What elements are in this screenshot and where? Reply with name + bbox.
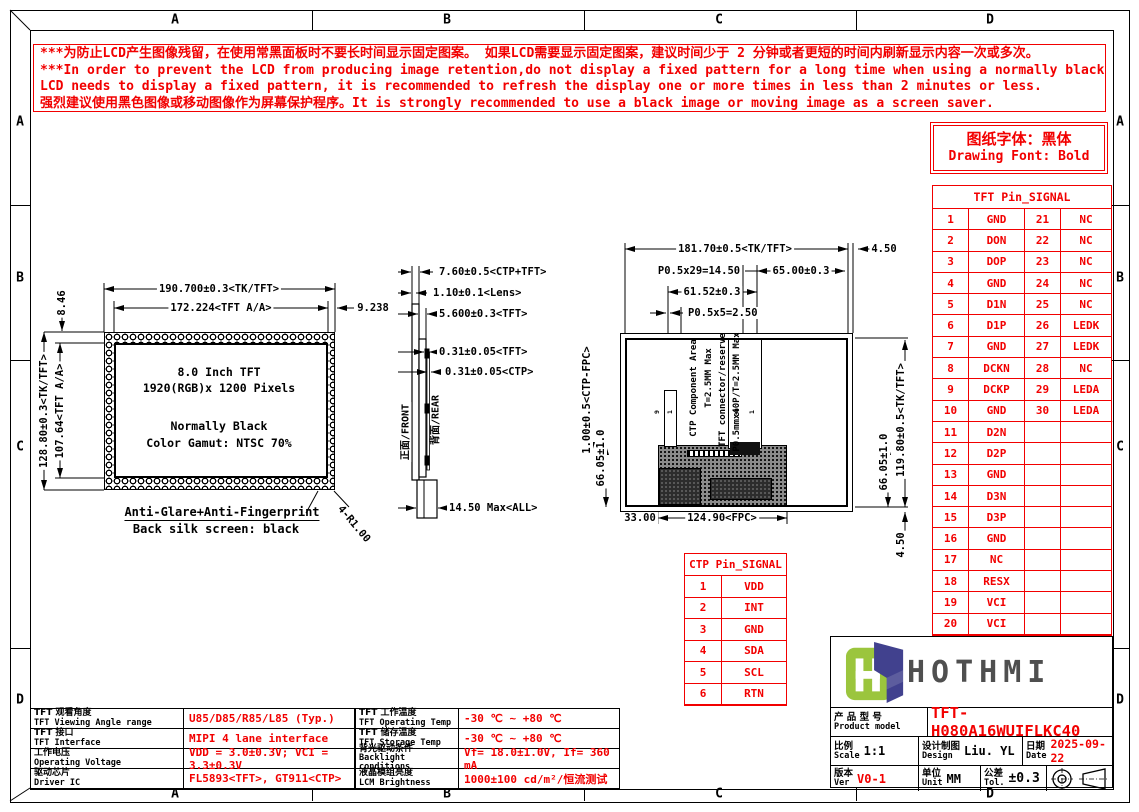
pin-number: 2 xyxy=(685,598,722,620)
dim-top-border: 8.46 xyxy=(56,288,68,317)
pin-number: 12 xyxy=(933,443,969,464)
rear-ctp-fpc-tail xyxy=(664,390,677,447)
spec-value: -30 ℃ ~ +80 ℃ xyxy=(459,709,619,728)
dim-max-thickness: 14.50 Max<ALL> xyxy=(447,502,540,514)
date-label-cn: 日期 xyxy=(1026,742,1046,752)
rear-fpc-stiffener xyxy=(659,468,701,505)
zone-label-top-c: C xyxy=(715,13,723,28)
rear-fpc-component xyxy=(710,478,772,500)
drawing-font-note: 图纸字体：黑体 Drawing Font: Bold xyxy=(930,122,1108,174)
pin-signal: D1N xyxy=(969,294,1025,315)
dim-outline-width: 190.700±0.3<TK/TFT> xyxy=(157,283,281,295)
pin-signal: VDD xyxy=(722,576,786,598)
scale-design-date-row: 比例 Scale 1:1 设计制图 Design Liu. YL 日期 Date… xyxy=(831,736,1112,765)
tft-pin-row: 3 DOP 23 NC xyxy=(933,252,1111,273)
unit-value: MM xyxy=(946,772,960,786)
design-label-cn: 设计制图 xyxy=(922,742,960,752)
pin-signal: GND xyxy=(969,209,1025,230)
zone-tick xyxy=(10,360,30,361)
pin-number xyxy=(1025,571,1061,592)
rear-thickness-label: T=2.5MM Max xyxy=(704,346,714,410)
pin-signal xyxy=(1061,486,1111,507)
front-view-active-area xyxy=(114,343,328,478)
zone-tick xyxy=(10,648,30,649)
pin-signal xyxy=(1061,528,1111,549)
spec-value: Vf= 18.0±1.0V, If= 360 mA xyxy=(459,749,619,768)
ver-unit-tol-row: 版本 Ver V0-1 单位 Unit MM 公差 Tol. ±0.3 xyxy=(831,765,1112,791)
zone-tick xyxy=(1112,648,1129,649)
pin-signal: D3P xyxy=(969,507,1025,528)
spec-label-en: TFT Operating Temp xyxy=(359,719,455,728)
dim-rear-height: 119.80±0.5<TK/TFT> xyxy=(895,361,907,479)
pin-signal: NC xyxy=(969,550,1025,571)
spec-row: 液晶模组亮度 LCM Brightness 1000±100 cd/m²/恒流测… xyxy=(356,769,619,788)
pin-number: 30 xyxy=(1025,401,1061,422)
rear-pitch-label: P0.5mmx40P/T=2.5MM Max xyxy=(732,330,742,453)
dim-outline-height: 128.80±0.3<TK/TFT> xyxy=(38,352,50,470)
tolerance-cell: 公差 Tol. ±0.3 xyxy=(981,766,1047,791)
dim-33: 33.00 xyxy=(622,512,658,524)
pin-number: 5 xyxy=(685,662,722,684)
dim-total-thickness: 7.60±0.5<CTP+TFT> xyxy=(437,266,548,278)
pin-number: 1 xyxy=(685,576,722,598)
spec-label-en: TFT Interface xyxy=(34,739,180,748)
tft-pin-row: 20 VCI xyxy=(933,614,1111,635)
pin-number: 3 xyxy=(685,619,722,641)
pin-number: 10 xyxy=(933,401,969,422)
product-label-cn: 产 品 型 号 xyxy=(834,713,901,723)
pin-number: 22 xyxy=(1025,230,1061,251)
spec-row: 工作电压 Operating Voltage VDD = 3.0±0.3V; V… xyxy=(31,749,354,769)
spec-row: TFT 观看角度 TFT Viewing Angle range U85/D85… xyxy=(31,709,354,729)
pin-number: 8 xyxy=(933,358,969,379)
pin-signal: RESX xyxy=(969,571,1025,592)
pin-number: 14 xyxy=(933,486,969,507)
date-label-en: Date xyxy=(1026,752,1046,761)
spec-label: TFT 接口 TFT Interface xyxy=(31,729,184,748)
scale-cell: 比例 Scale 1:1 xyxy=(831,737,919,765)
spec-table-left: TFT 观看角度 TFT Viewing Angle range U85/D85… xyxy=(30,708,355,789)
dim-right-border: 9.238 xyxy=(355,302,391,314)
font-note-en: Drawing Font: Bold xyxy=(934,149,1104,164)
pin-number xyxy=(1025,486,1061,507)
spec-label: 背光驱动条件 Backlight conditions xyxy=(356,749,459,768)
pin-signal: D2P xyxy=(969,443,1025,464)
tft-pin-row: 7 GND 27 LEDK xyxy=(933,337,1111,358)
front-resolution-label: 1920(RGB)x 1200 Pixels xyxy=(143,381,295,395)
pin-number xyxy=(1025,443,1061,464)
pin-signal: RTN xyxy=(722,684,786,706)
pin-number: 26 xyxy=(1025,315,1061,336)
zone-tick xyxy=(856,10,857,30)
ctp-pin-number-1: 1 xyxy=(666,410,674,414)
pin-signal: NC xyxy=(1061,252,1111,273)
zone-label-top-b: B xyxy=(443,13,451,28)
spec-label: 液晶模组亮度 LCM Brightness xyxy=(356,769,459,788)
dim-6605-right: 66.05±1.0 xyxy=(878,432,890,493)
font-note-cn: 图纸字体：黑体 xyxy=(934,128,1104,149)
pin-signal: D2N xyxy=(969,422,1025,443)
ctp-pin-table-title: CTP Pin_SIGNAL xyxy=(685,554,786,576)
zone-tick xyxy=(584,10,585,30)
rear-ctp-area-label: CTP Component Area xyxy=(689,337,699,439)
dim-6152: 61.52±0.3 xyxy=(682,286,743,298)
pin-number: 16 xyxy=(933,528,969,549)
pin-number xyxy=(1025,507,1061,528)
date-cell: 日期 Date 2025-09-22 xyxy=(1023,737,1112,765)
pin-number: 17 xyxy=(933,550,969,571)
tft-pin-row: 17 NC xyxy=(933,550,1111,571)
dim-tft-gap: 0.31±0.05<TFT> xyxy=(437,346,530,358)
tft-pin-row: 13 GND xyxy=(933,465,1111,486)
zone-label-top-a: A xyxy=(171,13,179,28)
tft-pin-row: 6 D1P 26 LEDK xyxy=(933,315,1111,336)
pin-signal: VCI xyxy=(969,592,1025,613)
zone-label-bottom-c: C xyxy=(715,787,723,802)
pin-number: 15 xyxy=(933,507,969,528)
spec-value: U85/D85/R85/L85 (Typ.) xyxy=(184,709,354,728)
pin-signal: D1P xyxy=(969,315,1025,336)
dim-lens-thickness: 1.10±0.1<Lens> xyxy=(431,287,524,299)
logo-row: HOTHMI xyxy=(831,637,1112,707)
pin-signal xyxy=(1061,571,1111,592)
pin-signal: D3N xyxy=(969,486,1025,507)
dim-ctp-fpc-offset: 1.00±0.5<CTP-FPC> xyxy=(581,344,593,455)
pin-signal: NC xyxy=(1061,230,1111,251)
spec-row: 背光驱动条件 Backlight conditions Vf= 18.0±1.0… xyxy=(356,749,619,769)
designer-value: Liu. YL xyxy=(964,744,1015,758)
spec-row: TFT 工作温度 TFT Operating Temp -30 ℃ ~ +80 … xyxy=(356,709,619,729)
tft-pin-row: 19 VCI xyxy=(933,592,1111,613)
pin-signal xyxy=(1061,550,1111,571)
zone-label-right-a: A xyxy=(1116,115,1124,130)
ver-label-en: Ver xyxy=(834,779,853,788)
pin-signal: GND xyxy=(969,401,1025,422)
zone-tick xyxy=(10,205,30,206)
pin-signal xyxy=(1061,507,1111,528)
pin-number xyxy=(1025,528,1061,549)
tft-pin-row: 9 DCKP 29 LEDA xyxy=(933,379,1111,400)
zone-label-left-d: D xyxy=(16,693,24,708)
third-angle-projection-icon xyxy=(1051,768,1109,790)
product-model-cell: TFT-H080A16WUIFLKC40 xyxy=(928,708,1112,736)
pin-number: 4 xyxy=(685,641,722,663)
zone-tick xyxy=(584,788,585,801)
pin-number: 18 xyxy=(933,571,969,592)
projection-cell xyxy=(1047,766,1112,791)
pin-signal: LEDK xyxy=(1061,337,1111,358)
pin-number: 5 xyxy=(933,294,969,315)
pin-number: 21 xyxy=(1025,209,1061,230)
product-label-en: Product model xyxy=(834,723,901,732)
dim-65: 65.00±0.3 xyxy=(771,265,832,277)
zone-tick xyxy=(312,10,313,30)
pin-signal: NC xyxy=(1061,358,1111,379)
spec-label: 工作电压 Operating Voltage xyxy=(31,749,184,768)
front-mode-label: Normally Black xyxy=(171,419,268,433)
spec-value: 1000±100 cd/m²/恒流测试 xyxy=(459,769,619,788)
pin-signal xyxy=(1061,614,1111,635)
ctp-pin-rows: 1 VDD 2 INT 3 GND 4 SDA 5 SCL xyxy=(685,576,786,705)
spec-label-en: Operating Voltage xyxy=(34,759,180,768)
pin-signal: GND xyxy=(969,273,1025,294)
dim-6605-left: 66.05±1.0 xyxy=(595,428,607,489)
spec-label-en: Driver IC xyxy=(34,779,180,788)
side-rear-label: 背面/REAR xyxy=(427,393,442,447)
spec-value: VDD = 3.0±0.3V; VCI = 3.3±0.3V xyxy=(184,749,354,768)
tft-pin-number-1: 1 xyxy=(748,410,756,414)
zone-label-top-d: D xyxy=(986,13,994,28)
ctp-pin-row: 2 INT xyxy=(685,598,786,620)
pin-number: 11 xyxy=(933,422,969,443)
product-model-value: TFT-H080A16WUIFLKC40 xyxy=(931,704,1109,740)
dim-active-height: 107.64<TFT A/A> xyxy=(54,362,66,461)
pin-signal: NC xyxy=(1061,209,1111,230)
tft-pin-row: 10 GND 30 LEDA xyxy=(933,401,1111,422)
pin-number: 28 xyxy=(1025,358,1061,379)
tft-pin-row: 4 GND 24 NC xyxy=(933,273,1111,294)
zone-label-left-a: A xyxy=(16,115,24,130)
pin-number: 4 xyxy=(933,273,969,294)
pin-signal: SDA xyxy=(722,641,786,663)
tol-label-en: Tol. xyxy=(984,779,1004,788)
pin-number: 23 xyxy=(1025,252,1061,273)
front-surface-note: Anti-Glare+Anti-Fingerprint xyxy=(124,505,319,521)
dim-fpc-width: 124.90<FPC> xyxy=(685,512,759,524)
zone-label-left-b: B xyxy=(16,271,24,286)
warning-line-cn: ***为防止LCD产生图像残留，在使用常黑面板时不要长时间显示固定图案。 如果L… xyxy=(40,46,1099,63)
tft-pin-rows: 1 GND 21 NC 2 DON 22 NC 3 DOP 23 NC 4 G xyxy=(933,209,1111,635)
front-gamut-label: Color Gamut: NTSC 70% xyxy=(146,436,291,450)
spec-label: 驱动芯片 Driver IC xyxy=(31,769,184,788)
scale-value: 1:1 xyxy=(864,744,886,758)
front-silkscreen-note: Back silk screen: black xyxy=(133,522,299,536)
pin-number: 7 xyxy=(933,337,969,358)
pin-signal: SCL xyxy=(722,662,786,684)
version-value: V0-1 xyxy=(857,772,886,786)
spec-label: TFT 观看角度 TFT Viewing Angle range xyxy=(31,709,184,728)
front-size-label: 8.0 Inch TFT xyxy=(177,365,260,379)
zone-tick xyxy=(312,788,313,801)
warning-line-en2: LCD needs to display a fixed pattern, it… xyxy=(40,79,1099,96)
pin-signal: NC xyxy=(1061,294,1111,315)
pin-signal: GND xyxy=(722,619,786,641)
pin-signal xyxy=(1061,422,1111,443)
pin-number: 29 xyxy=(1025,379,1061,400)
dim-rear-width: 181.70±0.5<TK/TFT> xyxy=(676,243,794,255)
pin-number: 9 xyxy=(933,379,969,400)
pin-number xyxy=(1025,422,1061,443)
rear-connector-label: TFT connector/reserve xyxy=(718,331,728,449)
pin-number: 6 xyxy=(933,315,969,336)
pin-signal: DON xyxy=(969,230,1025,251)
tft-pin-row: 18 RESX xyxy=(933,571,1111,592)
scale-label-en: Scale xyxy=(834,752,860,761)
pin-number: 3 xyxy=(933,252,969,273)
pin-signal: DOP xyxy=(969,252,1025,273)
pin-number: 25 xyxy=(1025,294,1061,315)
image-retention-warning: ***为防止LCD产生图像残留，在使用常黑面板时不要长时间显示固定图案。 如果L… xyxy=(33,44,1106,112)
dim-rear-right-gap: 4.50 xyxy=(869,243,898,255)
ctp-pin-number-9: 9 xyxy=(653,410,661,414)
spec-label-en: LCM Brightness xyxy=(359,779,455,788)
tft-pin-row: 12 D2P xyxy=(933,443,1111,464)
unit-cell: 单位 Unit MM xyxy=(919,766,981,791)
pin-number xyxy=(1025,614,1061,635)
dim-tft-thickness: 5.600±0.3<TFT> xyxy=(437,308,530,320)
zone-label-left-c: C xyxy=(16,440,24,455)
spec-row: 驱动芯片 Driver IC FL5893<TFT>, GT911<CTP> xyxy=(31,769,354,788)
tft-pin-table: TFT Pin_SIGNAL 1 GND 21 NC 2 DON 22 NC 3… xyxy=(932,185,1112,636)
ctp-pin-table: CTP Pin_SIGNAL 1 VDD 2 INT 3 GND 4 SDA xyxy=(684,553,787,706)
design-label-en: Design xyxy=(922,752,960,761)
tft-pin-row: 5 D1N 25 NC xyxy=(933,294,1111,315)
dim-ctp-pitch: P0.5x29=14.50 xyxy=(656,265,742,277)
pin-number xyxy=(1025,465,1061,486)
tft-pin-row: 2 DON 22 NC xyxy=(933,230,1111,251)
pin-number: 20 xyxy=(933,614,969,635)
design-cell: 设计制图 Design Liu. YL xyxy=(919,737,1023,765)
side-front-label: 正面/FRONT xyxy=(397,402,412,462)
pin-number: 6 xyxy=(685,684,722,706)
pin-number xyxy=(1025,550,1061,571)
tft-pin-row: 11 D2N xyxy=(933,422,1111,443)
tft-pin-row: 15 D3P xyxy=(933,507,1111,528)
hothmi-logo-icon xyxy=(845,641,907,703)
pin-signal xyxy=(1061,443,1111,464)
pin-signal: GND xyxy=(969,337,1025,358)
ctp-pin-row: 5 SCL xyxy=(685,662,786,684)
ctp-pin-row: 6 RTN xyxy=(685,684,786,706)
pin-number: 13 xyxy=(933,465,969,486)
warning-line-en1: ***In order to prevent the LCD from prod… xyxy=(40,63,1099,80)
tft-pin-row: 8 DCKN 28 NC xyxy=(933,358,1111,379)
zone-tick xyxy=(1112,205,1129,206)
dim-ctp-gap: 0.31±0.05<CTP> xyxy=(443,366,536,378)
pin-number: 19 xyxy=(933,592,969,613)
ctp-pin-row: 3 GND xyxy=(685,619,786,641)
pin-signal xyxy=(1061,465,1111,486)
pin-signal: DCKN xyxy=(969,358,1025,379)
version-cell: 版本 Ver V0-1 xyxy=(831,766,919,791)
spec-table-mid: TFT 工作温度 TFT Operating Temp -30 ℃ ~ +80 … xyxy=(355,708,620,789)
zone-label-right-c: C xyxy=(1116,440,1124,455)
dim-active-width: 172.224<TFT A/A> xyxy=(168,302,273,314)
spec-label-en: TFT Viewing Angle range xyxy=(34,719,180,728)
dim-pitch5: P0.5x5=2.50 xyxy=(686,307,760,319)
pin-number: 2 xyxy=(933,230,969,251)
product-model-label: 产 品 型 号 Product model xyxy=(831,708,928,736)
pin-signal: GND xyxy=(969,465,1025,486)
product-model-row: 产 品 型 号 Product model TFT-H080A16WUIFLKC… xyxy=(831,707,1112,736)
pin-signal: LEDA xyxy=(1061,379,1111,400)
pin-signal: INT xyxy=(722,598,786,620)
pin-signal: NC xyxy=(1061,273,1111,294)
tft-pin-row: 14 D3N xyxy=(933,486,1111,507)
pin-signal: DCKP xyxy=(969,379,1025,400)
lcd-datasheet-drawing: { "colors":{"red":"#f20000","line_black"… xyxy=(0,0,1139,812)
ctp-pin-row: 4 SDA xyxy=(685,641,786,663)
pin-signal: GND xyxy=(969,528,1025,549)
tft-pin-table-title: TFT Pin_SIGNAL xyxy=(933,186,1111,209)
zone-label-right-b: B xyxy=(1116,271,1124,286)
hothmi-logo-text: HOTHMI xyxy=(907,655,1051,690)
ctp-pin-row: 1 VDD xyxy=(685,576,786,598)
pin-signal: LEDK xyxy=(1061,315,1111,336)
title-block: HOTHMI 产 品 型 号 Product model TFT-H080A16… xyxy=(830,636,1113,788)
spec-label: TFT 工作温度 TFT Operating Temp xyxy=(356,709,459,728)
zone-label-right-d: D xyxy=(1116,693,1124,708)
zone-tick xyxy=(1112,360,1129,361)
tft-pin-row: 1 GND 21 NC xyxy=(933,209,1111,230)
unit-label-en: Unit xyxy=(922,779,942,788)
warning-line-mixed: 强烈建议使用黑色图像或移动图像作为屏幕保护程序。It is strongly r… xyxy=(40,96,1099,113)
pin-signal: LEDA xyxy=(1061,401,1111,422)
pin-signal: VCI xyxy=(969,614,1025,635)
pin-number: 1 xyxy=(933,209,969,230)
tft-pin-row: 16 GND xyxy=(933,528,1111,549)
spec-value: FL5893<TFT>, GT911<CTP> xyxy=(184,769,354,788)
pin-number: 24 xyxy=(1025,273,1061,294)
dim-450-bottom: 4.50 xyxy=(895,530,907,559)
tolerance-value: ±0.3 xyxy=(1008,771,1039,786)
pin-number: 27 xyxy=(1025,337,1061,358)
pin-number xyxy=(1025,592,1061,613)
scale-label-cn: 比例 xyxy=(834,742,860,752)
pin-signal xyxy=(1061,592,1111,613)
date-value: 2025-09-22 xyxy=(1050,737,1109,765)
